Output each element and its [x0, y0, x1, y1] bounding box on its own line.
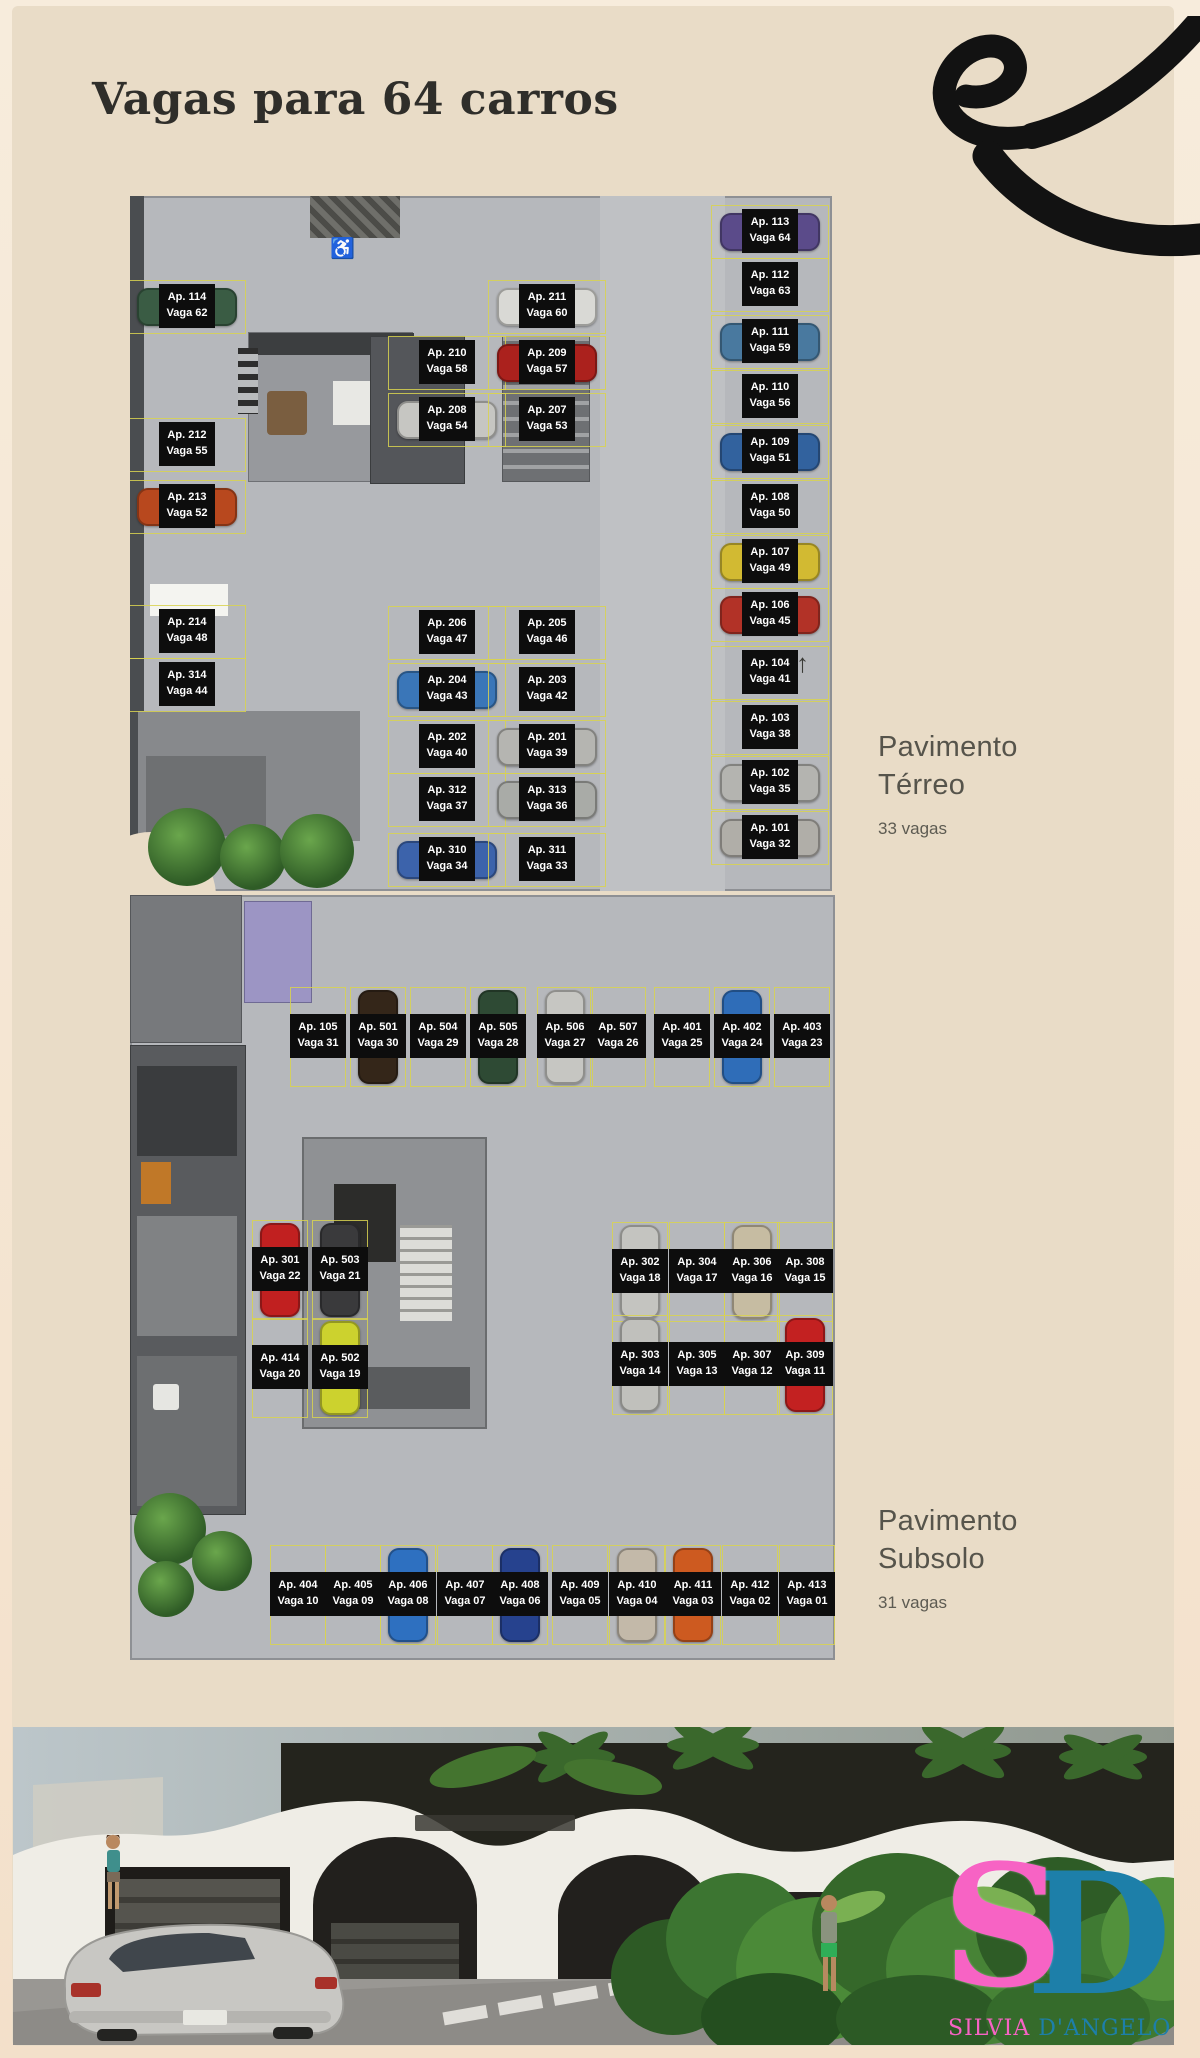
caption-subsolo-count: 31 vagas: [878, 1593, 1018, 1613]
upper-left-structure: [130, 895, 242, 1043]
parking-spot-label: Ap. 107Vaga 49: [742, 539, 798, 583]
parking-spot-label: Ap. 110Vaga 56: [742, 374, 798, 418]
parking-spot-label: Ap. 507Vaga 26: [590, 1014, 646, 1058]
caption-subsolo-line1: Pavimento: [878, 1502, 1018, 1540]
parking-spot-label: Ap. 506Vaga 27: [537, 1014, 593, 1058]
parking-spot-label: Ap. 302Vaga 18: [612, 1249, 668, 1293]
parking-spot-label: Ap. 303Vaga 14: [612, 1342, 668, 1386]
parking-spot-label: Ap. 404Vaga 10: [270, 1572, 326, 1616]
parking-spot-label: Ap. 314Vaga 44: [159, 662, 215, 706]
street-car: [65, 1925, 344, 2041]
parking-spot-label: Ap. 501Vaga 30: [350, 1014, 406, 1058]
parking-spot-label: Ap. 413Vaga 01: [779, 1572, 835, 1616]
parking-spot-label: Ap. 204Vaga 43: [419, 667, 475, 711]
parking-spot-label: Ap. 206Vaga 47: [419, 610, 475, 654]
stairwell: [400, 1225, 452, 1321]
parking-spot-label: Ap. 308Vaga 15: [777, 1249, 833, 1293]
parking-spot-label: Ap. 402Vaga 24: [714, 1014, 770, 1058]
accessible-parking-icon: ♿: [330, 236, 355, 261]
parking-spot-label: Ap. 406Vaga 08: [380, 1572, 436, 1616]
left-rooms-block: [130, 1045, 246, 1515]
calligraphy-flourish-icon: [836, 16, 1200, 286]
appliance-white: [153, 1384, 179, 1410]
parking-spot-label: Ap. 503Vaga 21: [312, 1247, 368, 1291]
plant-cluster: [192, 1531, 252, 1591]
parking-spot-label: Ap. 109Vaga 51: [742, 429, 798, 473]
parking-spot-label: Ap. 313Vaga 36: [519, 777, 575, 821]
parking-spot-label: Ap. 202Vaga 40: [419, 724, 475, 768]
parking-spot-label: Ap. 307Vaga 12: [724, 1342, 780, 1386]
parking-spot-label: Ap. 305Vaga 13: [669, 1342, 725, 1386]
room-dark: [137, 1066, 237, 1156]
tree: [220, 824, 286, 890]
parking-spot-label: Ap. 214Vaga 48: [159, 609, 215, 653]
room-light: [137, 1216, 237, 1336]
parking-spot-label: Ap. 414Vaga 20: [252, 1345, 308, 1389]
caption-terreo-line1: Pavimento: [878, 728, 1018, 766]
parking-spot-label: Ap. 208Vaga 54: [419, 397, 475, 441]
page-title: Vagas para 64 carros: [92, 74, 619, 125]
parking-spot-label: Ap. 203Vaga 42: [519, 667, 575, 711]
caption-terreo-count: 33 vagas: [878, 819, 1018, 839]
logo-monogram-s: S: [942, 1842, 1063, 2010]
parking-spot-label: Ap. 207Vaga 53: [519, 397, 575, 441]
parking-spot-label: Ap. 211Vaga 60: [519, 284, 575, 328]
parking-spot-label: Ap. 412Vaga 02: [722, 1572, 778, 1616]
parking-spot-label: Ap. 310Vaga 34: [419, 837, 475, 881]
parking-spot-label: Ap. 401Vaga 25: [654, 1014, 710, 1058]
parking-spot-label: Ap. 101Vaga 32: [742, 815, 798, 859]
caption-subsolo-line2: Subsolo: [878, 1540, 1018, 1578]
parking-spot-label: Ap. 301Vaga 22: [252, 1247, 308, 1291]
parking-spot-label: Ap. 311Vaga 33: [519, 837, 575, 881]
stairs-upper: [238, 348, 258, 414]
tree: [148, 808, 226, 886]
floorplan-subsolo: Ap. 105Vaga 31Ap. 501Vaga 30Ap. 504Vaga …: [130, 895, 835, 1660]
parking-spot-label: Ap. 106Vaga 45: [742, 592, 798, 636]
parking-spot-label: Ap. 104Vaga 41: [742, 650, 798, 694]
parking-spot-label: Ap. 409Vaga 05: [552, 1572, 608, 1616]
brand-logo: S D SILVIA D'ANGELO: [942, 1848, 1192, 2053]
parking-spot-label: Ap. 108Vaga 50: [742, 484, 798, 528]
plant-cluster: [138, 1561, 194, 1617]
parking-spot-label: Ap. 312Vaga 37: [419, 777, 475, 821]
parking-spot-label: Ap. 502Vaga 19: [312, 1345, 368, 1389]
brochure-page: Vagas para 64 carros ♿ ↑ Ap. 114Vaga 62A…: [0, 0, 1200, 2058]
hatched-no-parking-zone: [310, 196, 400, 238]
parking-spot-label: Ap. 403Vaga 23: [774, 1014, 830, 1058]
parking-spot-label: Ap. 304Vaga 17: [669, 1249, 725, 1293]
tree: [280, 814, 354, 888]
parking-spot-label: Ap. 111Vaga 59: [742, 319, 798, 363]
floorplan-terreo: ♿ ↑ Ap. 114Vaga 62Ap. 212Vaga 55Ap. 213V…: [130, 196, 832, 891]
parking-spot-label: Ap. 408Vaga 06: [492, 1572, 548, 1616]
lobby-furniture: [267, 391, 307, 435]
parking-spot-label: Ap. 505Vaga 28: [470, 1014, 526, 1058]
parking-spot-label: Ap. 407Vaga 07: [437, 1572, 493, 1616]
caption-subsolo: Pavimento Subsolo 31 vagas: [878, 1502, 1018, 1613]
parking-spot-label: Ap. 103Vaga 38: [742, 705, 798, 749]
parking-spot-label: Ap. 205Vaga 46: [519, 610, 575, 654]
parking-spot-label: Ap. 306Vaga 16: [724, 1249, 780, 1293]
parking-spot-label: Ap. 113Vaga 64: [742, 209, 798, 253]
parking-spot-label: Ap. 102Vaga 35: [742, 760, 798, 804]
parking-spot-label: Ap. 210Vaga 58: [419, 340, 475, 384]
parking-spot-label: Ap. 410Vaga 04: [609, 1572, 665, 1616]
parking-spot-label: Ap. 411Vaga 03: [665, 1572, 721, 1616]
parking-spot-label: Ap. 105Vaga 31: [290, 1014, 346, 1058]
caption-terreo-line2: Térreo: [878, 766, 1018, 804]
parking-spot-label: Ap. 405Vaga 09: [325, 1572, 381, 1616]
building-sign: [415, 1815, 575, 1831]
parking-spot-label: Ap. 112Vaga 63: [742, 262, 798, 306]
parking-spot-label: Ap. 114Vaga 62: [159, 284, 215, 328]
room-mid: [137, 1356, 237, 1506]
caption-terreo: Pavimento Térreo 33 vagas: [878, 728, 1018, 839]
parking-spot-label: Ap. 212Vaga 55: [159, 422, 215, 466]
cabinet-orange: [141, 1162, 171, 1204]
parking-spot-label: Ap. 213Vaga 52: [159, 484, 215, 528]
parking-spot-label: Ap. 309Vaga 11: [777, 1342, 833, 1386]
parking-spot-label: Ap. 209Vaga 57: [519, 340, 575, 384]
parking-spot-label: Ap. 201Vaga 39: [519, 724, 575, 768]
lighter-drive-area: [600, 196, 725, 891]
parking-spot-label: Ap. 504Vaga 29: [410, 1014, 466, 1058]
